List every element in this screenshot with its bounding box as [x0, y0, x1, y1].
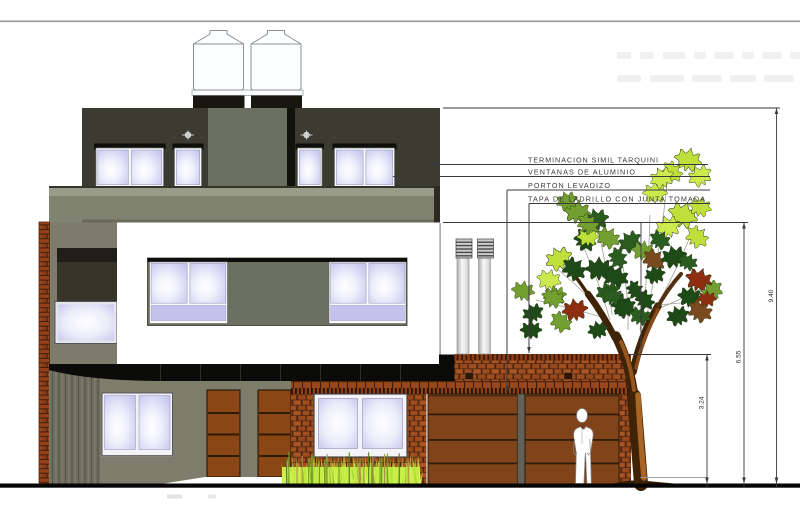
svg-text:TAPA DE LADRILLO CON JUNTA TOM: TAPA DE LADRILLO CON JUNTA TOMADA: [528, 195, 705, 204]
svg-text:3.24: 3.24: [699, 396, 706, 409]
svg-text:6.55: 6.55: [736, 350, 743, 363]
svg-text:PORTON LEVADIZO: PORTON LEVADIZO: [528, 181, 610, 190]
svg-text:TERMINACION SIMIL TARQUINI: TERMINACION SIMIL TARQUINI: [528, 156, 658, 165]
svg-text:VENTANAS DE ALUMINIO: VENTANAS DE ALUMINIO: [528, 168, 635, 177]
svg-text:9.40: 9.40: [768, 289, 775, 302]
